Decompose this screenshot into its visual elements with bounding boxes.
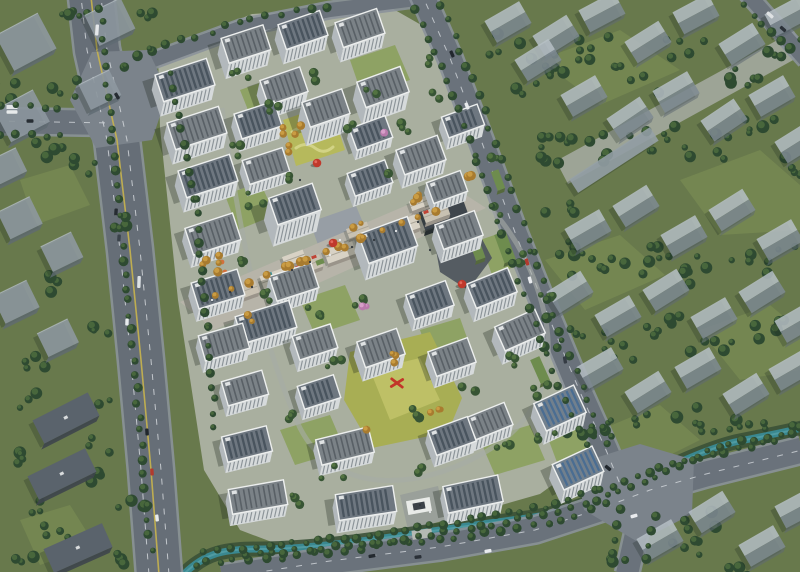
pedestrian [291,269,293,271]
pedestrian [309,261,311,263]
pedestrian [329,254,331,256]
car [114,208,118,215]
bus [137,276,141,288]
pedestrian [269,278,271,280]
pedestrian [395,230,397,232]
pedestrian [429,249,431,251]
pedestrian [373,239,375,241]
pedestrian [351,246,353,248]
car [125,318,129,325]
car [150,468,154,475]
pedestrian [417,221,419,223]
red-ball-sculpture [329,239,338,248]
red-ball-sculpture [313,159,322,168]
red-ball-sculpture [458,280,467,289]
car [145,428,149,435]
pedestrian [211,299,213,301]
pedestrian [429,511,431,513]
rendering-canvas [0,0,800,572]
aerial-masterplan-view [0,0,800,572]
pedestrian [339,239,341,241]
car [27,119,34,122]
pedestrian [251,286,253,288]
car [155,514,159,521]
pedestrian [229,291,231,293]
car [117,234,121,241]
bus [7,110,18,113]
pedestrian [419,504,421,506]
pedestrian [299,179,301,181]
